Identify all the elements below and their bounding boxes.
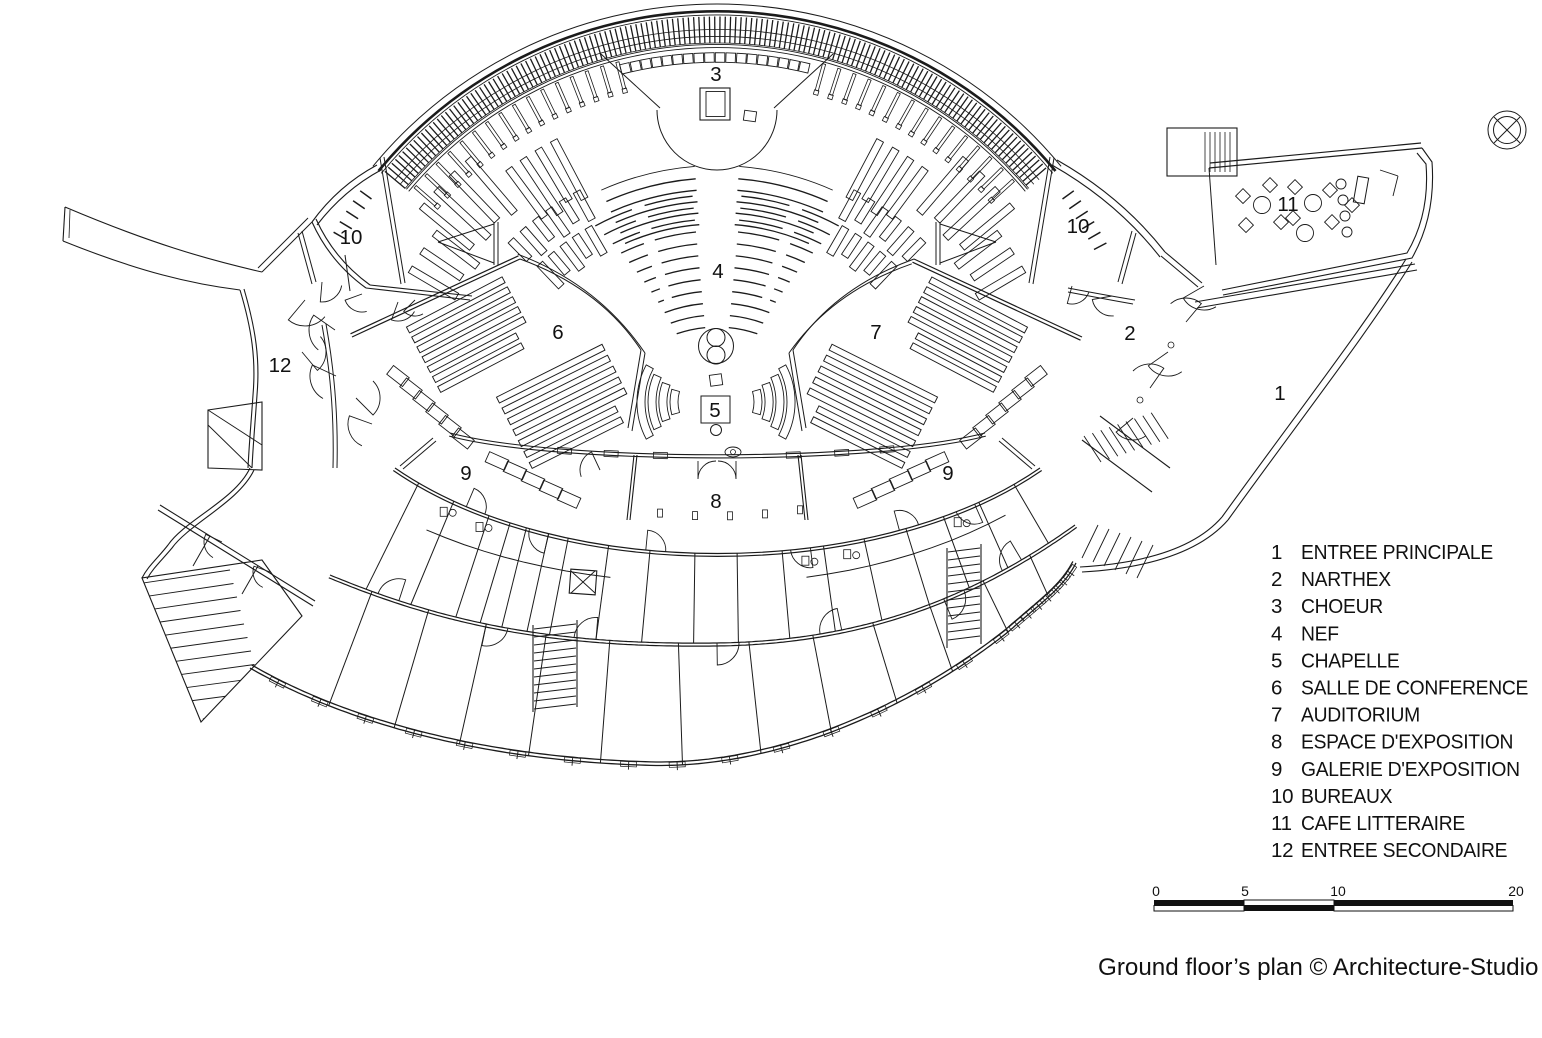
svg-text:0: 0 xyxy=(1152,883,1160,899)
svg-text:6: 6 xyxy=(1271,677,1282,700)
svg-text:20: 20 xyxy=(1508,883,1524,899)
svg-text:9: 9 xyxy=(942,462,953,485)
svg-text:2: 2 xyxy=(1271,568,1282,591)
svg-text:4: 4 xyxy=(1271,622,1282,645)
svg-text:1: 1 xyxy=(1274,382,1285,405)
svg-text:AUDITORIUM: AUDITORIUM xyxy=(1301,704,1420,727)
svg-text:11: 11 xyxy=(1271,812,1292,835)
svg-text:ESPACE D'EXPOSITION: ESPACE D'EXPOSITION xyxy=(1301,731,1513,754)
svg-text:1: 1 xyxy=(1271,541,1282,564)
svg-text:CHAPELLE: CHAPELLE xyxy=(1301,650,1399,673)
svg-text:10: 10 xyxy=(340,226,363,249)
svg-text:10: 10 xyxy=(1271,785,1293,808)
svg-text:Ground floor’s plan © Architec: Ground floor’s plan © Architecture-Studi… xyxy=(1098,954,1538,981)
svg-text:NEF: NEF xyxy=(1301,623,1339,646)
svg-text:7: 7 xyxy=(870,321,881,344)
svg-text:10: 10 xyxy=(1067,215,1090,238)
svg-text:12: 12 xyxy=(1271,839,1293,862)
svg-text:11: 11 xyxy=(1277,193,1298,216)
svg-text:GALERIE D'EXPOSITION: GALERIE D'EXPOSITION xyxy=(1301,758,1520,781)
svg-text:ENTREE SECONDAIRE: ENTREE SECONDAIRE xyxy=(1301,840,1507,863)
svg-text:SALLE DE CONFERENCE: SALLE DE CONFERENCE xyxy=(1301,677,1528,700)
svg-text:CHOEUR: CHOEUR xyxy=(1301,596,1383,619)
svg-text:9: 9 xyxy=(1271,758,1282,781)
svg-text:3: 3 xyxy=(1271,595,1282,618)
svg-text:NARTHEX: NARTHEX xyxy=(1301,569,1391,592)
svg-text:4: 4 xyxy=(712,260,723,283)
svg-text:8: 8 xyxy=(1271,731,1282,754)
svg-text:3: 3 xyxy=(710,63,721,86)
svg-text:12: 12 xyxy=(269,354,292,377)
svg-text:6: 6 xyxy=(552,321,563,344)
svg-text:5: 5 xyxy=(1241,883,1249,899)
svg-text:10: 10 xyxy=(1330,883,1346,899)
svg-text:ENTREE PRINCIPALE: ENTREE PRINCIPALE xyxy=(1301,541,1493,564)
svg-text:2: 2 xyxy=(1124,322,1135,345)
svg-text:CAFE LITTERAIRE: CAFE LITTERAIRE xyxy=(1301,812,1465,835)
svg-text:7: 7 xyxy=(1271,704,1282,727)
svg-text:BUREAUX: BUREAUX xyxy=(1301,785,1392,808)
svg-text:9: 9 xyxy=(460,462,471,485)
svg-text:5: 5 xyxy=(1271,649,1282,672)
svg-text:8: 8 xyxy=(710,490,721,513)
svg-text:5: 5 xyxy=(709,399,720,422)
